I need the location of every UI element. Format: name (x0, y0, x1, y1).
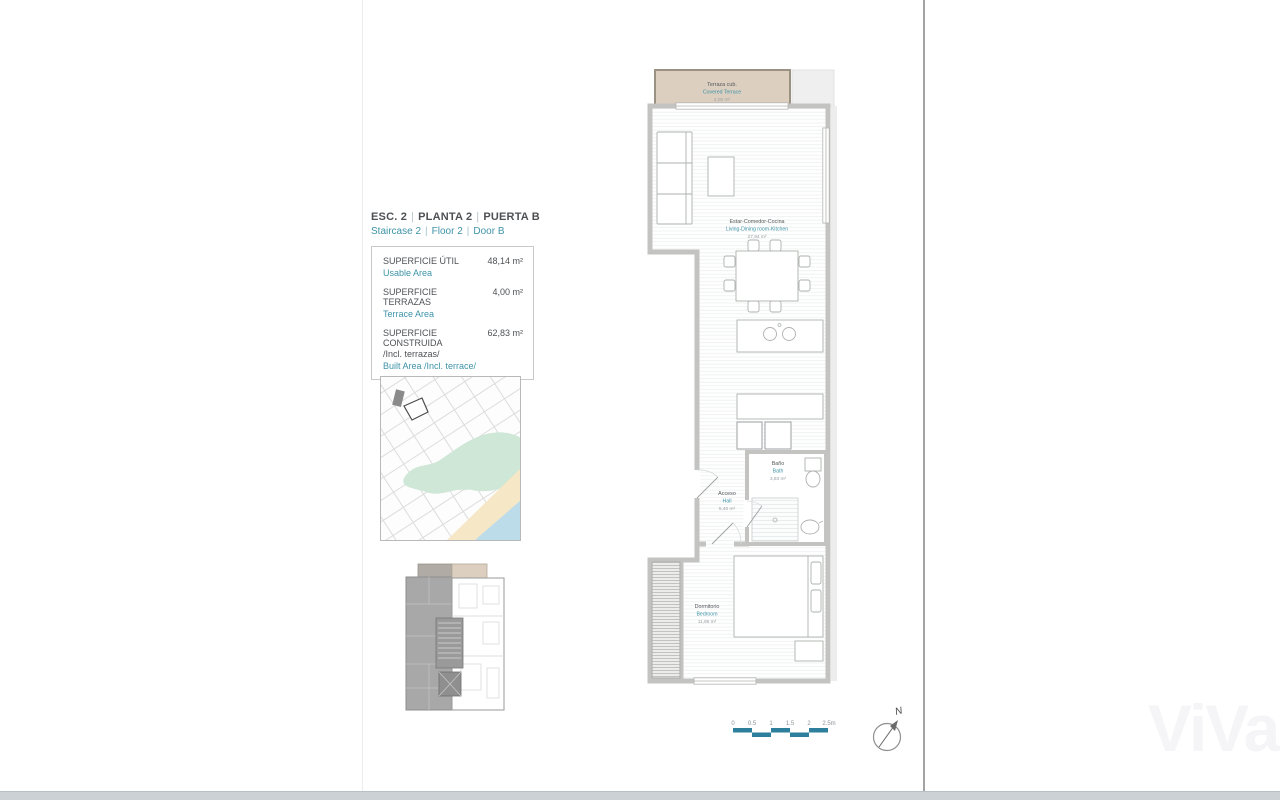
kitchen-island (737, 394, 823, 419)
scale-tick-2: 2 (807, 721, 811, 727)
north-label: N (894, 705, 905, 718)
living-area-text: 27,94 m² (748, 234, 767, 240)
puerta-label: PUERTA B (483, 211, 540, 223)
coffee-table (708, 157, 734, 196)
plan-title-es: ESC. 2|PLANTA 2|PUERTA B (371, 211, 571, 223)
north-compass: N (866, 703, 912, 762)
terrace-name-en: Covered Terrace (703, 90, 741, 96)
floorplan-page: ESC. 2|PLANTA 2|PUERTA B Staircase 2|Flo… (0, 0, 1280, 800)
terrace-area-text: 4,00 m² (714, 97, 731, 103)
bedroom-window (694, 678, 756, 684)
exterior-right-band (831, 106, 837, 681)
dresser (795, 641, 823, 661)
hall-name-es: Acceso (718, 491, 736, 497)
kitchen-counter (737, 320, 823, 352)
built-area-row: SUPERFICIE CONSTRUIDA62,83 m² /Incl. ter… (383, 328, 523, 371)
usable-area-label-en: Usable Area (383, 268, 523, 278)
living-name-es: Estar-Comedor-Cocina (729, 219, 784, 225)
separator: | (407, 211, 418, 223)
terrace: Terraza cub. Covered Terrace 4,00 m² (655, 70, 790, 108)
terrace-area-value: 4,00 m² (486, 287, 523, 307)
key-plan (403, 560, 508, 723)
scale-bar-segments (733, 728, 828, 737)
plan-title-en: Staircase 2|Floor 2|Door B (371, 226, 571, 237)
louvered-gallery (652, 562, 680, 678)
terrace-area-label-en: Terrace Area (383, 309, 523, 319)
living-window (823, 128, 829, 223)
keyplan-stair-core (436, 618, 463, 696)
pillow (811, 562, 821, 584)
usable-area-row: SUPERFICIE ÚTIL48,14 m² Usable Area (383, 256, 523, 278)
entrance-door-gap (694, 470, 701, 498)
terrace-door (676, 103, 788, 109)
pillow (811, 590, 821, 612)
dining-table (724, 240, 810, 312)
staircase-label: Staircase 2 (371, 226, 421, 237)
separator: | (472, 211, 483, 223)
separator: | (421, 226, 432, 237)
bathroom: Baño Bath 3,83 m² (744, 452, 827, 544)
surface-area-box: SUPERFICIE ÚTIL48,14 m² Usable Area SUPE… (371, 246, 534, 380)
built-area-label: SUPERFICIE CONSTRUIDA (383, 328, 481, 348)
sofa (657, 132, 692, 224)
bedroom-name-en: Bedroom (696, 612, 717, 618)
hall-name-en: Hall (723, 499, 732, 505)
esc-label: ESC. 2 (371, 211, 407, 223)
planta-label: PLANTA 2 (418, 211, 472, 223)
scale-tick-05: 0.5 (748, 721, 757, 727)
terrace-area-label: SUPERFICIE TERRAZAS (383, 287, 486, 307)
main-floor-plan: Terraza cub. Covered Terrace 4,00 m² (640, 55, 845, 705)
scale-tick-25: 2.5m (822, 721, 835, 727)
scale-tick-1: 1 (769, 721, 773, 727)
bath-name-es: Baño (772, 461, 785, 467)
keyplan-neighbor-terrace (418, 564, 452, 577)
scale-bar: 0 0.5 1 1.5 2 2.5m (729, 717, 841, 748)
built-area-label-en: Built Area /Incl. terrace/ (383, 361, 523, 371)
appliance (765, 422, 791, 449)
agency-watermark: ViVa (1148, 678, 1280, 793)
hall-area-text: 5,40 m² (719, 506, 736, 512)
terrace-name-es: Terraza cub. (707, 82, 737, 88)
bath-name-en: Bath (773, 469, 784, 475)
viewer-bottom-bar (0, 791, 1280, 800)
page-edge-left (362, 0, 363, 791)
bedroom-name-es: Dormitorio (695, 604, 720, 610)
appliance (737, 422, 762, 449)
site-location-map (380, 376, 521, 546)
built-area-label2: /Incl. terrazas/ (383, 349, 523, 359)
bed (734, 556, 823, 637)
compass-circle (874, 724, 901, 751)
floor-label: Floor 2 (432, 226, 463, 237)
plan-header: ESC. 2|PLANTA 2|PUERTA B Staircase 2|Flo… (371, 211, 571, 237)
compass-needle (879, 726, 894, 747)
page-edge-right (923, 0, 925, 791)
bedroom-area-text: 11,95 m² (698, 619, 717, 625)
built-area-value: 62,83 m² (481, 328, 523, 348)
bath-area-text: 3,83 m² (770, 476, 787, 482)
usable-area-label: SUPERFICIE ÚTIL (383, 256, 459, 266)
living-name-en: Living-Dining room-Kitchen (726, 227, 788, 233)
keyplan-unit-terrace (452, 564, 487, 578)
scale-tick-0: 0 (731, 721, 735, 727)
door-label: Door B (473, 226, 504, 237)
terrace-area-row: SUPERFICIE TERRAZAS4,00 m² Terrace Area (383, 287, 523, 319)
scale-tick-15: 1.5 (786, 721, 795, 727)
separator: | (463, 226, 474, 237)
usable-area-value: 48,14 m² (481, 256, 523, 266)
exterior-common-area (792, 70, 834, 106)
